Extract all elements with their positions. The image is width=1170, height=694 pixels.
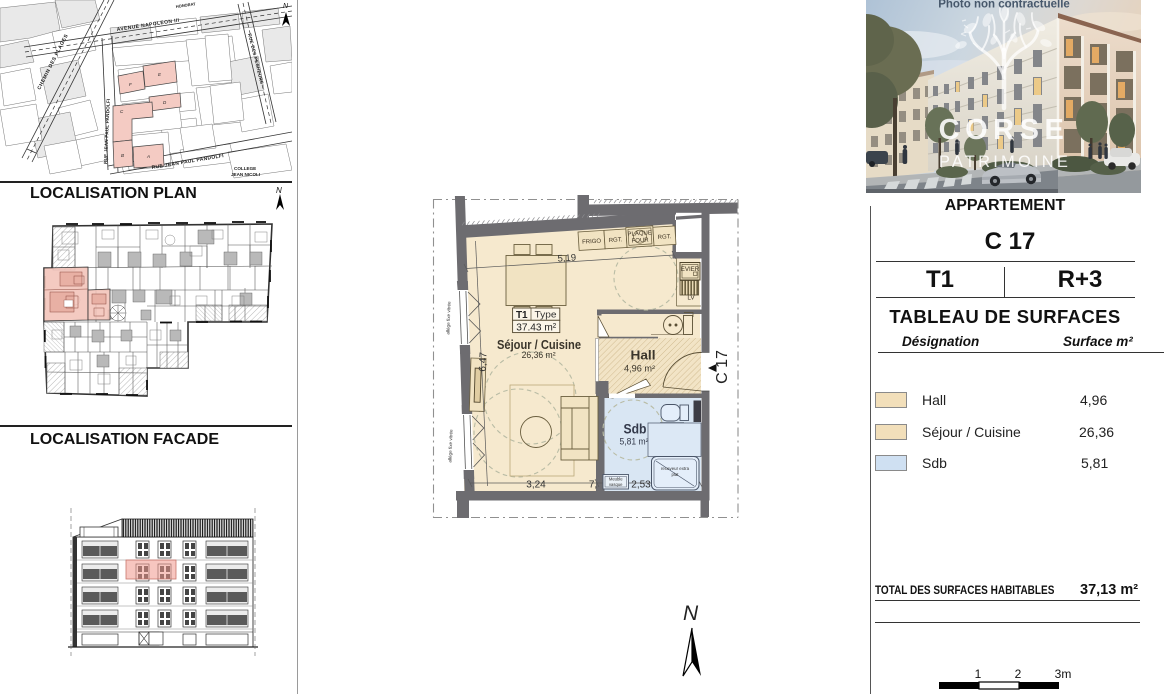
svg-text:6,47: 6,47	[478, 351, 490, 371]
svg-text:F: F	[129, 82, 132, 87]
svg-text:B: B	[121, 153, 124, 158]
svg-text:Type: Type	[535, 310, 557, 320]
svg-text:N: N	[276, 186, 282, 195]
svg-text:5,81 m²: 5,81 m²	[620, 437, 649, 447]
svg-text:A: A	[146, 154, 150, 159]
svg-text:3,24: 3,24	[526, 480, 546, 491]
svg-text:Sdb: Sdb	[624, 422, 647, 437]
svg-text:allège fixe vitrée: allège fixe vitrée	[447, 429, 453, 463]
svg-text:N: N	[683, 602, 699, 625]
svg-text:4,96 m²: 4,96 m²	[624, 364, 655, 374]
svg-text:EVIER: EVIER	[681, 266, 700, 273]
svg-text:3m: 3m	[1055, 667, 1072, 681]
svg-text:Meuble: Meuble	[609, 477, 623, 482]
svg-text:CORSE: CORSE	[939, 114, 1070, 146]
svg-text:receveur extra: receveur extra	[661, 466, 690, 471]
svg-text:LV: LV	[687, 295, 695, 302]
svg-text:T1: T1	[516, 310, 528, 321]
svg-text:37.43 m²: 37.43 m²	[516, 322, 556, 334]
svg-text:JEAN NICOLI: JEAN NICOLI	[231, 172, 260, 177]
svg-text:RGT.: RGT.	[658, 234, 672, 241]
svg-text:FOUR: FOUR	[632, 238, 650, 245]
svg-text:HONORAT: HONORAT	[175, 1, 196, 9]
svg-text:C 17: C 17	[714, 350, 731, 384]
svg-text:5,19: 5,19	[557, 252, 576, 264]
svg-text:Hall: Hall	[631, 348, 656, 363]
svg-text:RUE JEAN PAUL PANDOLFI: RUE JEAN PAUL PANDOLFI	[103, 98, 111, 164]
svg-text:vasque: vasque	[609, 482, 623, 487]
svg-text:2,53: 2,53	[631, 480, 651, 491]
svg-text:1: 1	[975, 667, 982, 681]
svg-text:allège fixe vitrée: allège fixe vitrée	[445, 301, 451, 335]
svg-text:26,36 m²: 26,36 m²	[522, 350, 556, 360]
svg-text:2: 2	[1015, 667, 1022, 681]
svg-text:Photo non contractuelle: Photo non contractuelle	[938, 0, 1070, 11]
svg-text:plat: plat	[671, 472, 679, 477]
svg-text:COLLEGE: COLLEGE	[234, 166, 256, 171]
svg-text:PATRIMOINE: PATRIMOINE	[939, 153, 1071, 171]
svg-text:FRIGO: FRIGO	[582, 239, 602, 246]
svg-text:RGT.: RGT.	[609, 237, 623, 244]
svg-text:7,: 7,	[589, 480, 597, 491]
